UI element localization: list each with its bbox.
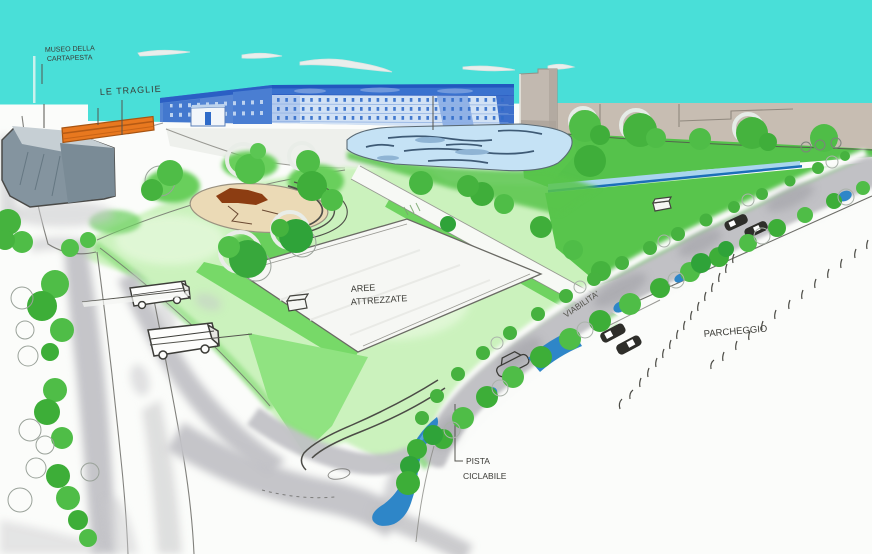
svg-text:CICLABILE: CICLABILE [463, 471, 507, 481]
svg-text:AREE: AREE [350, 282, 375, 294]
svg-text:PISTA: PISTA [466, 456, 490, 466]
